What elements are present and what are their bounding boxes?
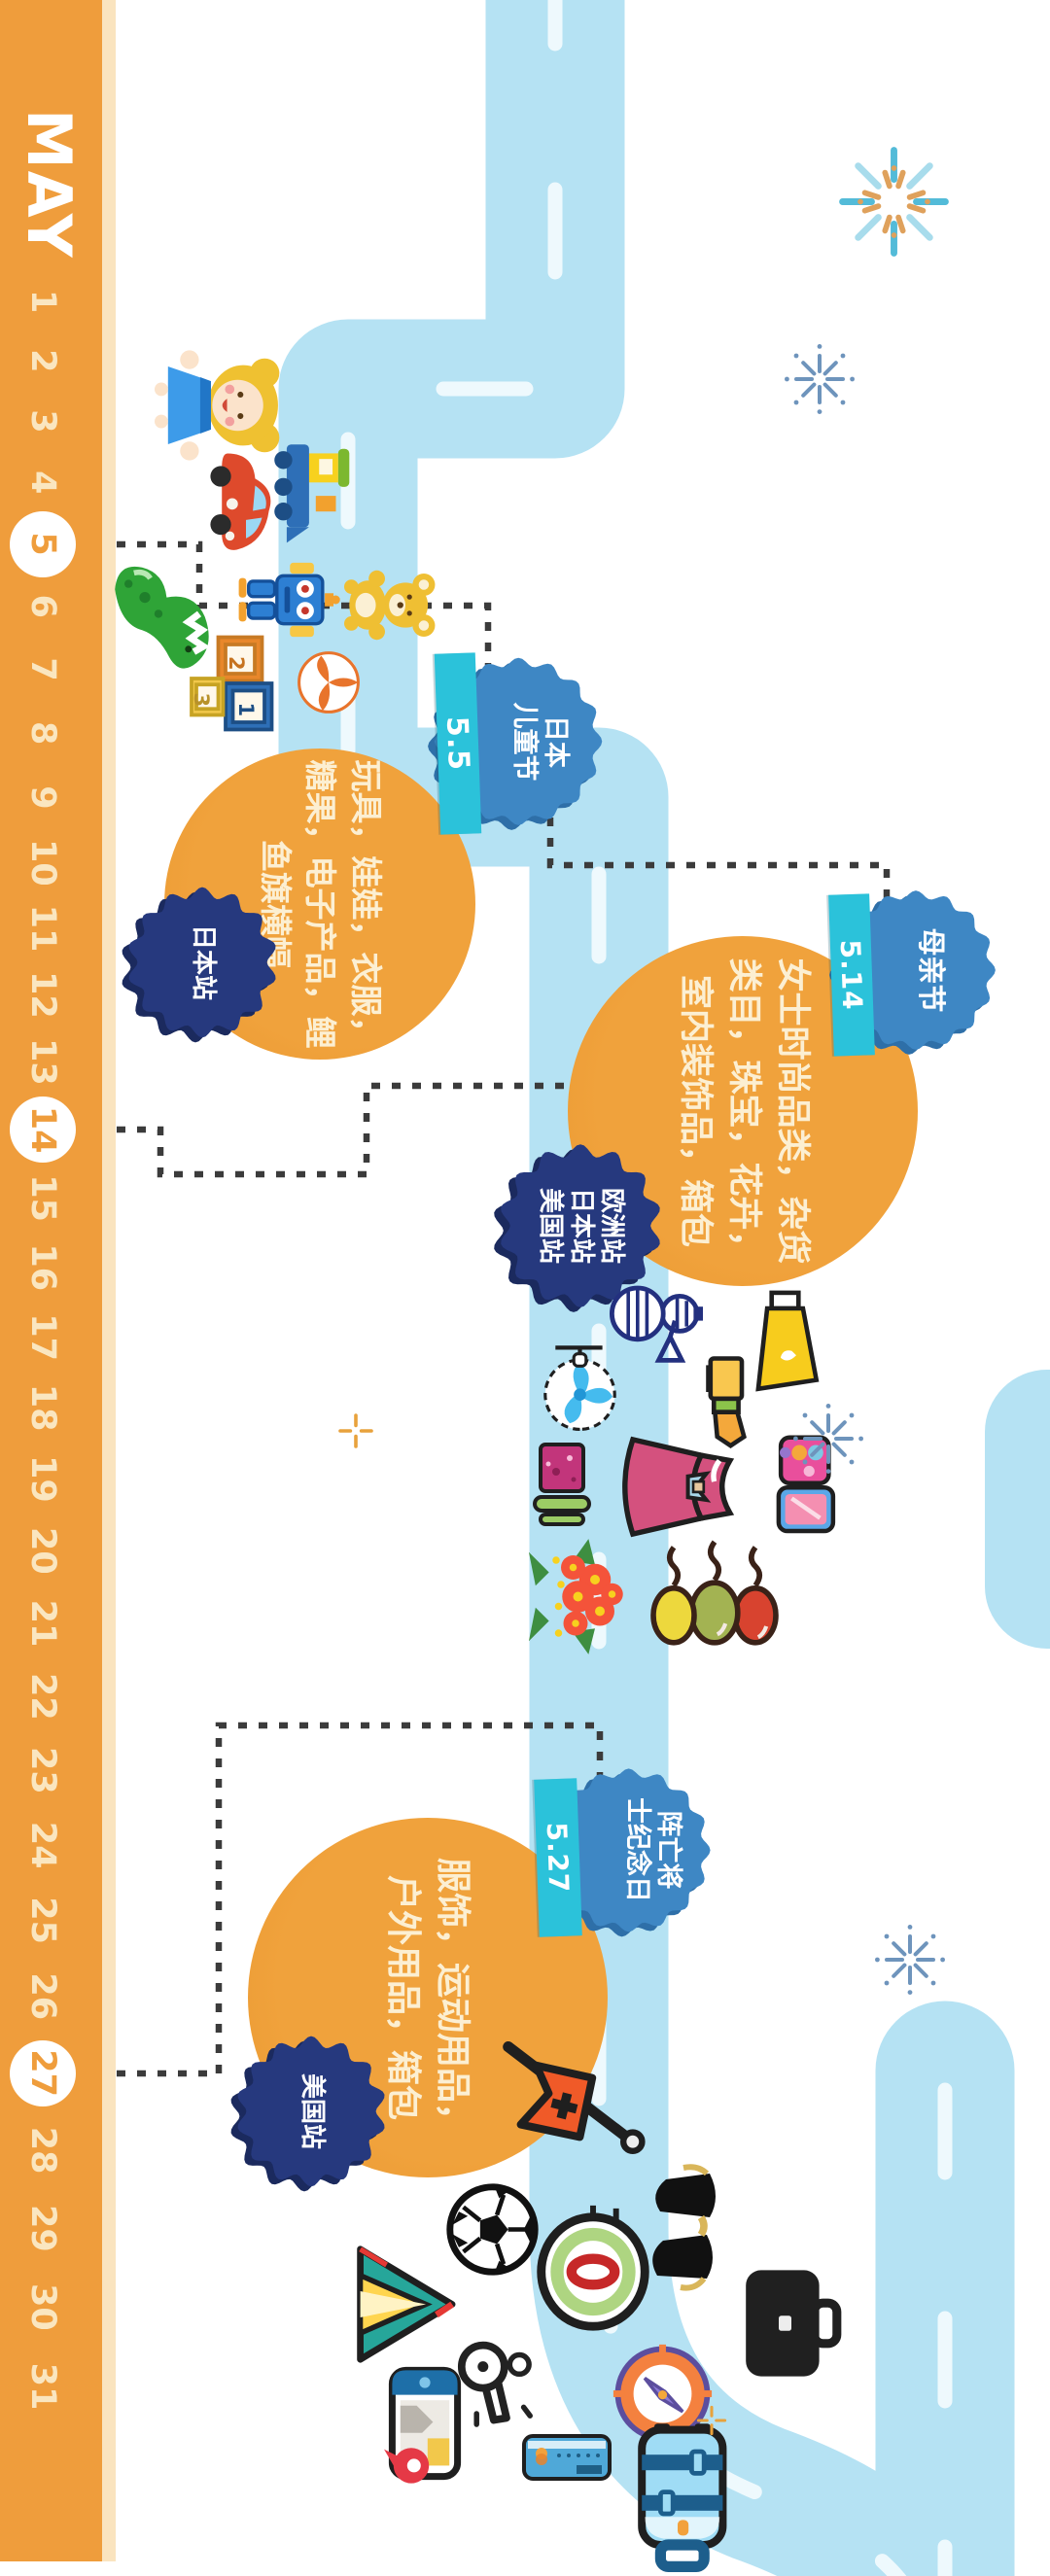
site-label: 美国站 — [296, 2073, 326, 2149]
calendar-day-number: 17 — [23, 1313, 62, 1361]
event-date: 5.14 — [834, 939, 869, 1011]
calendar-day-number: 5 — [23, 532, 62, 555]
calendar-day-number: 11 — [23, 905, 62, 953]
calendar-day-number: 10 — [23, 839, 62, 887]
category-line: 糖果，电子产品，鲤 — [297, 760, 343, 1049]
sparkle-orange-icon — [695, 2404, 728, 2437]
calendar-day-number: 21 — [23, 1600, 62, 1648]
phone-map-icon — [357, 2362, 493, 2498]
site-label: 日本站 — [187, 924, 217, 1000]
calendar-day-highlighted: 14 — [10, 1097, 76, 1163]
holiday-badge-title: 儿童节 — [508, 702, 540, 781]
briefcase-icon — [728, 2260, 855, 2386]
holiday-badge-title: 阵亡将 — [652, 1810, 683, 1889]
calendar-day-number: 18 — [23, 1384, 62, 1432]
road-side-tab — [985, 1370, 1050, 1649]
category-line: 室内装饰品，箱包 — [670, 975, 718, 1247]
calendar-day-number: 31 — [23, 2363, 62, 2411]
event-date: 5.5 — [440, 715, 476, 771]
luggage-icon — [608, 2420, 763, 2576]
calendar-day-number: 16 — [23, 1243, 62, 1291]
holiday-badge-title: 母亲节 — [915, 927, 949, 1012]
beach-ball-icon — [292, 645, 366, 719]
site-label: 日本站 — [565, 1188, 595, 1264]
calendar-day-number: 3 — [23, 409, 62, 433]
category-line: 女士时尚品类，杂货 — [767, 957, 816, 1264]
site-badge-japan-childrens-day: 日本站 — [120, 880, 285, 1045]
calendar-day-number: 2 — [23, 349, 62, 372]
calendar-day-number: 30 — [23, 2283, 62, 2331]
calendar-day-number: 25 — [23, 1897, 62, 1944]
calendar-day-number: 9 — [23, 785, 62, 809]
calendar-day-number: 13 — [23, 1038, 62, 1086]
sparkle-icon — [871, 1921, 949, 1999]
toy-block-number: 2 — [225, 656, 248, 671]
calendar-day-number: 6 — [23, 595, 62, 618]
infographic-page: { "calendar": { "month_label": "MAY", "d… — [0, 0, 1050, 2561]
calendar-day-number: 20 — [23, 1527, 62, 1575]
calendar-day-number: 27 — [23, 2049, 62, 2097]
balloons-icon — [647, 1531, 783, 1667]
calendar-day-number: 7 — [23, 657, 62, 680]
jewelry-box-icon — [513, 1437, 611, 1534]
category-line: 服饰，运动用品， — [428, 1858, 477, 2138]
toy-train-icon — [259, 435, 370, 547]
category-line: 类目，珠宝，花卉， — [718, 957, 767, 1264]
toy-block-number: 1 — [234, 703, 258, 717]
calendar-day-number: 24 — [23, 1822, 62, 1869]
teddy-bear-icon — [345, 554, 447, 656]
calendar-day-number: 29 — [23, 2205, 62, 2252]
event-date: 5.27 — [541, 1822, 576, 1894]
date-ribbon-mothers-day: 5.14 — [828, 893, 875, 1056]
firework-burst-icon — [839, 146, 951, 258]
calendar-day-number: 15 — [23, 1174, 62, 1222]
calendar-day-number: 19 — [23, 1455, 62, 1503]
calendar-day-number: 4 — [23, 470, 62, 494]
calendar-day-number: 12 — [23, 971, 62, 1019]
calendar-day-number: 28 — [23, 2127, 62, 2175]
site-label: 欧洲站 — [596, 1188, 626, 1264]
calendar-bar: MAY 123456789101112131415161718192021222… — [0, 0, 102, 2561]
calendar-day-number: 23 — [23, 1747, 62, 1794]
calendar-day-number: 14 — [23, 1106, 62, 1154]
sparkle-orange-icon — [336, 1411, 375, 1450]
holiday-badge-title: 士纪念日 — [621, 1797, 652, 1902]
calendar-day-number: 1 — [23, 290, 62, 313]
calendar-bar-edge — [101, 0, 116, 2561]
calendar-day-number: 22 — [23, 1673, 62, 1721]
month-label: MAY — [14, 109, 85, 260]
flower-bouquet-icon — [528, 1536, 649, 1657]
site-badge-memorial-day: 美国站 — [228, 2029, 394, 2194]
calendar-day-number: 8 — [23, 721, 62, 745]
calendar-day-number: 26 — [23, 1972, 62, 2020]
sparkle-icon — [789, 1400, 867, 1478]
calendar-day-highlighted: 27 — [10, 2040, 76, 2106]
toy-block-number: 3 — [190, 693, 213, 708]
category-line: 玩具，娃娃，衣服， — [342, 760, 388, 1049]
toy-blocks-icon — [188, 630, 309, 751]
date-ribbon-memorial-day: 5.27 — [534, 1778, 582, 1936]
sparkle-icon — [781, 340, 858, 418]
holiday-badge-title: 日本 — [540, 715, 571, 768]
site-label: 美国站 — [535, 1188, 565, 1264]
calendar-day-highlighted: 5 — [10, 511, 76, 577]
infographic-stage: MAY 123456789101112131415161718192021222… — [0, 0, 1050, 2561]
date-ribbon-japan-childrens-day: 5.5 — [435, 652, 481, 834]
credit-card-icon — [518, 2409, 615, 2506]
